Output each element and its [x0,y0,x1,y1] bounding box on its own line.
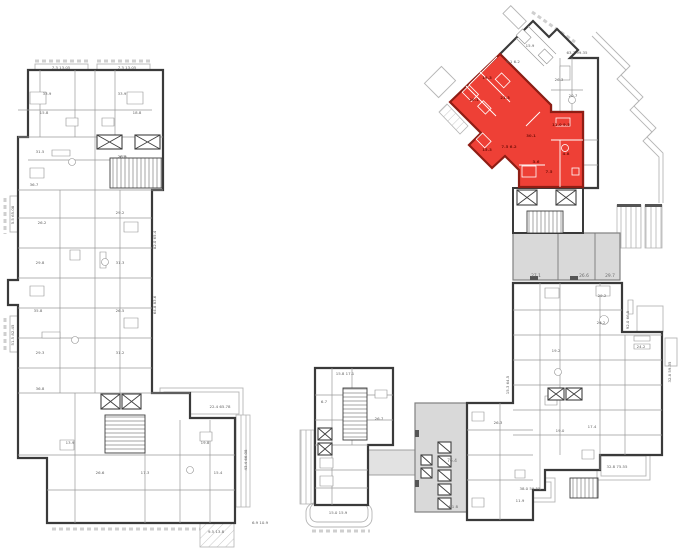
storage-box-icon [438,442,451,453]
elevator-icon [135,135,160,149]
area-label: 82.0 65.4 [152,230,157,249]
area-label: 18.8 [133,110,142,115]
elevator-icon [101,394,120,409]
balcony-hatch [645,205,662,248]
area-label: 6.9 10.9 [252,520,269,525]
balcony-threshold [617,204,641,207]
area-label: 30.1 [526,133,536,138]
corridor-plaza [367,450,415,475]
elevator-icon [548,388,564,400]
elevator-icon [318,443,332,455]
area-label: 26.6 [96,470,105,475]
area-label: 32.8 75.55 [606,464,628,469]
table [69,159,76,166]
area-label: 36.7 [30,182,39,187]
area-label: 76.4 [447,458,457,464]
center-building[interactable] [315,368,393,505]
area-label: 3.6 [533,159,540,164]
area-label: 35.8 [34,308,43,313]
door-threshold [570,276,578,280]
area-label: 20.1 [469,97,479,102]
storage-box-icon [421,455,432,465]
terrace-outline [637,306,663,332]
area-label: 26.3 [555,77,564,82]
area-label: 19.3 [482,75,492,80]
area-label: 29.2 [598,293,607,298]
area-label: 11.0 9.5 [552,122,570,127]
area-label: 7.5 6.2 [501,144,516,149]
entrance-porch [306,503,372,527]
area-label: 64.8 83.6 [152,295,157,314]
area-label: 5.5 65.08 [10,205,15,224]
area-label: 15.0 15.9 [329,510,348,515]
area-label: 7.5 [546,169,553,174]
left-building[interactable] [8,70,235,523]
area-label: 31.3 [116,260,125,265]
area-label: 15.4 [214,470,223,475]
area-label: 4.8 [563,151,570,156]
area-label: 11.9 [516,498,525,503]
area-label: 31.5 [36,149,45,154]
area-label: 19.0 [556,428,565,433]
area-label: 15.8 [40,110,49,115]
balcony-outline [503,6,526,29]
area-label: 33.9 [118,91,127,96]
elevator-icon [97,135,122,149]
area-label: 63.7 99.35 [566,50,588,55]
area-label: 29.2 [116,210,125,215]
area-label: 20.7 [569,93,578,98]
area-label: 26.7 [375,416,384,421]
area-label: 7.3 13.05 [118,65,137,70]
area-label: 4.1 8 [448,504,458,509]
elevator-icon [556,190,576,205]
terrace-hatch [200,523,234,547]
balcony-threshold [645,204,662,207]
stairs-icon [105,415,145,453]
area-label: 6.7 [321,399,328,404]
area-label: 17.4 [588,424,597,429]
floor-plan-svg: 7.3 13.057.3 13.0533.933.915.818.831.526… [0,0,680,551]
elevator-icon [122,394,141,409]
area-label: 9.5 13.8 [208,529,225,534]
stairs-icon [343,388,367,440]
table [102,259,109,266]
stairs-icon [527,211,563,233]
corridor-right [513,233,620,280]
stairs-icon [110,158,162,188]
table [187,467,194,474]
area-label: 19.2 [552,348,561,353]
floor-plan-page: 7.3 13.057.3 13.0533.933.915.818.831.526… [0,0,680,551]
area-label: 92.0 66.5 [625,310,630,329]
elevator-icon [566,388,582,400]
elevator-icon [517,190,537,205]
area-label: 51.5 82.45 [10,324,15,346]
elevator-icon [318,428,332,440]
table [72,337,79,344]
area-label: 22.4 65.78 [209,404,231,409]
door-threshold [415,480,419,487]
area-label: 13.9 [66,440,75,445]
storage-box-icon [421,468,432,478]
table [555,369,562,376]
door-threshold [415,430,419,437]
terrace-outline [424,66,455,97]
area-label: 26.3 [494,420,503,425]
top-right-core [513,188,583,233]
storage-box-icon [438,470,451,481]
area-label: 26.2 [38,220,47,225]
area-label: 29.8 [36,260,45,265]
area-label: 33.9 [43,91,52,96]
area-label: 32.8 59.35 [667,361,672,383]
area-label: 15.3 [482,147,492,152]
area-label: 26.8 [118,154,127,159]
area-label: 8.1 6.2 [506,59,520,64]
area-label: 27.1 [531,273,541,279]
balcony-hatch [300,430,314,504]
zigzag-terrace [596,32,663,203]
area-label: 24.2 [637,344,646,349]
area-label: 29.7 [605,273,615,279]
right-building[interactable] [467,283,662,520]
area-label: 29.3 [36,350,45,355]
area-label: 19.8 [201,440,210,445]
area-label: 15.8 17.1 [336,371,355,376]
storage-box-icon [438,484,451,495]
area-label: 43.4 66.08 [243,449,248,471]
area-label: 15.9 [526,43,535,48]
area-label: 21.3 [500,95,510,100]
area-label: 26.6 [579,273,589,279]
area-label: 26.5 [116,308,125,313]
right-building-outline [467,283,662,520]
area-label: 26.2 [597,320,606,325]
area-label: 7.3 13.05 [52,65,71,70]
area-label: 17.3 [141,470,150,475]
stairs-icon [570,478,598,498]
area-label: 38.0 59.55 [519,486,541,491]
area-label: 31.2 [116,350,125,355]
area-label: 36.8 [36,386,45,391]
area-label: 15.3 64.5 [505,375,510,394]
